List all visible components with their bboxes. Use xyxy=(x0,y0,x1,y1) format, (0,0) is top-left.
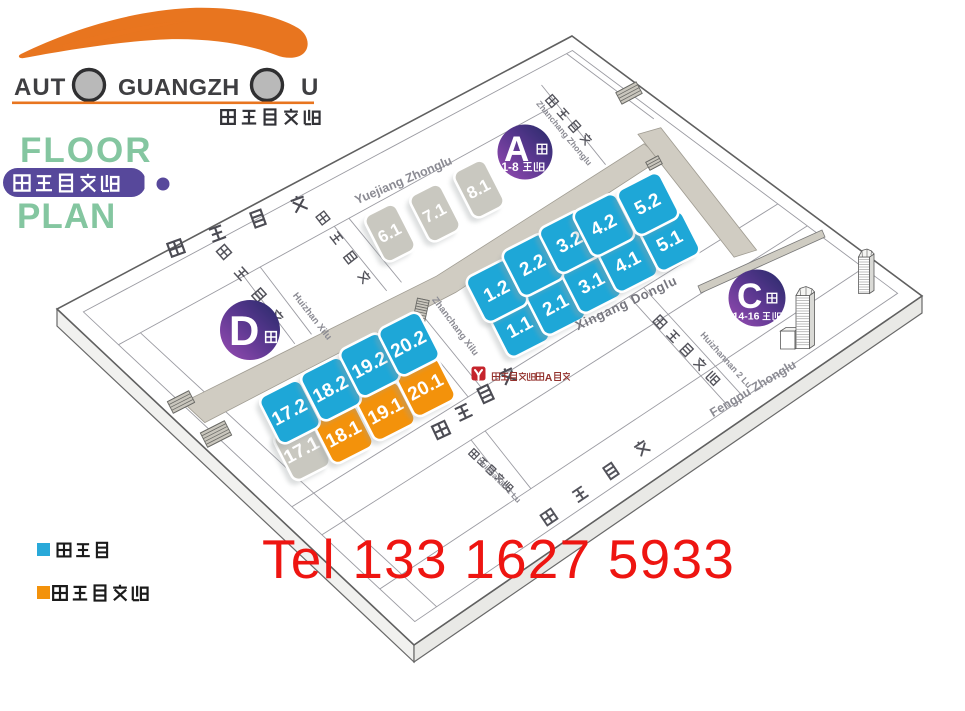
svg-text:1-8: 1-8 xyxy=(501,160,519,174)
svg-text:AUT: AUT xyxy=(14,74,66,101)
svg-text:Tel 133 1627 5933: Tel 133 1627 5933 xyxy=(262,528,735,590)
svg-text:U: U xyxy=(301,74,318,101)
svg-text:A: A xyxy=(545,372,553,384)
svg-text:14-16: 14-16 xyxy=(733,311,760,323)
svg-text:PLAN: PLAN xyxy=(17,197,116,236)
svg-text:FLOOR: FLOOR xyxy=(20,131,152,170)
svg-text:D: D xyxy=(229,307,259,354)
svg-text:GUANGZH: GUANGZH xyxy=(118,74,240,100)
